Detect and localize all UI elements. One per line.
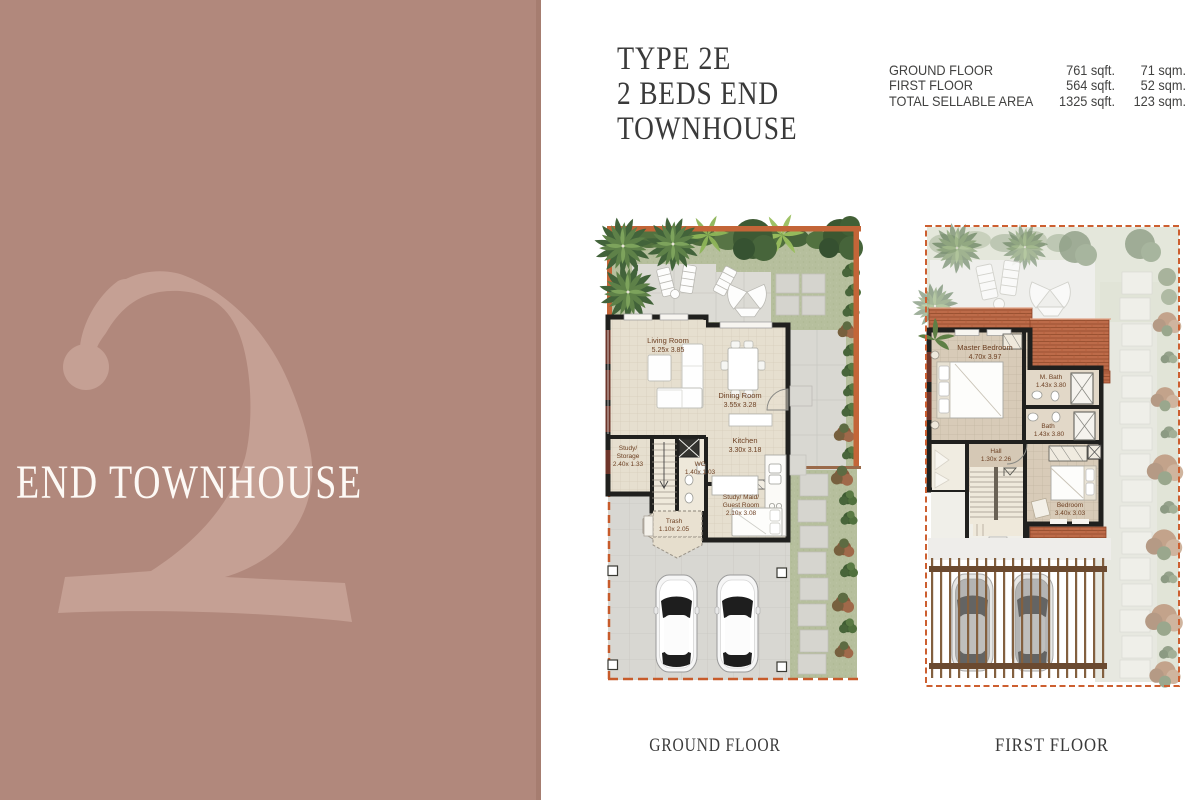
svg-text:M. Bath: M. Bath [1040, 374, 1063, 381]
svg-text:1.10x 2.05: 1.10x 2.05 [659, 526, 690, 533]
svg-text:WC: WC [695, 461, 706, 468]
svg-text:Study/: Study/ [619, 445, 638, 452]
svg-text:Guest Room: Guest Room [723, 502, 760, 509]
svg-text:5.25x 3.85: 5.25x 3.85 [652, 347, 685, 354]
svg-text:Hall: Hall [990, 448, 1002, 455]
svg-text:Bedroom: Bedroom [1057, 502, 1083, 509]
svg-text:4.70x 3.97: 4.70x 3.97 [969, 354, 1002, 361]
svg-text:1.30x 2.26: 1.30x 2.26 [981, 456, 1012, 463]
svg-text:Dining Room: Dining Room [718, 391, 761, 400]
svg-text:Kitchen: Kitchen [732, 436, 757, 445]
svg-text:1.43x 3.80: 1.43x 3.80 [1036, 382, 1067, 389]
svg-text:2.10x 3.08: 2.10x 3.08 [726, 510, 757, 517]
svg-text:2.40x 1.33: 2.40x 1.33 [613, 461, 644, 468]
svg-text:Trash: Trash [666, 518, 683, 525]
svg-text:3.55x 3.28: 3.55x 3.28 [724, 402, 757, 409]
svg-text:3.40x 3.03: 3.40x 3.03 [1055, 510, 1086, 517]
svg-text:3.30x 3.18: 3.30x 3.18 [729, 447, 762, 454]
svg-text:Study/ Maid/: Study/ Maid/ [723, 494, 759, 501]
svg-text:Bath: Bath [1041, 423, 1055, 430]
svg-text:1.40x 1.03: 1.40x 1.03 [685, 469, 716, 476]
svg-text:Living Room: Living Room [647, 336, 689, 345]
svg-text:Master Bedroom: Master Bedroom [957, 343, 1012, 352]
svg-text:1.43x 3.80: 1.43x 3.80 [1034, 431, 1065, 438]
svg-text:Storage: Storage [617, 453, 640, 460]
